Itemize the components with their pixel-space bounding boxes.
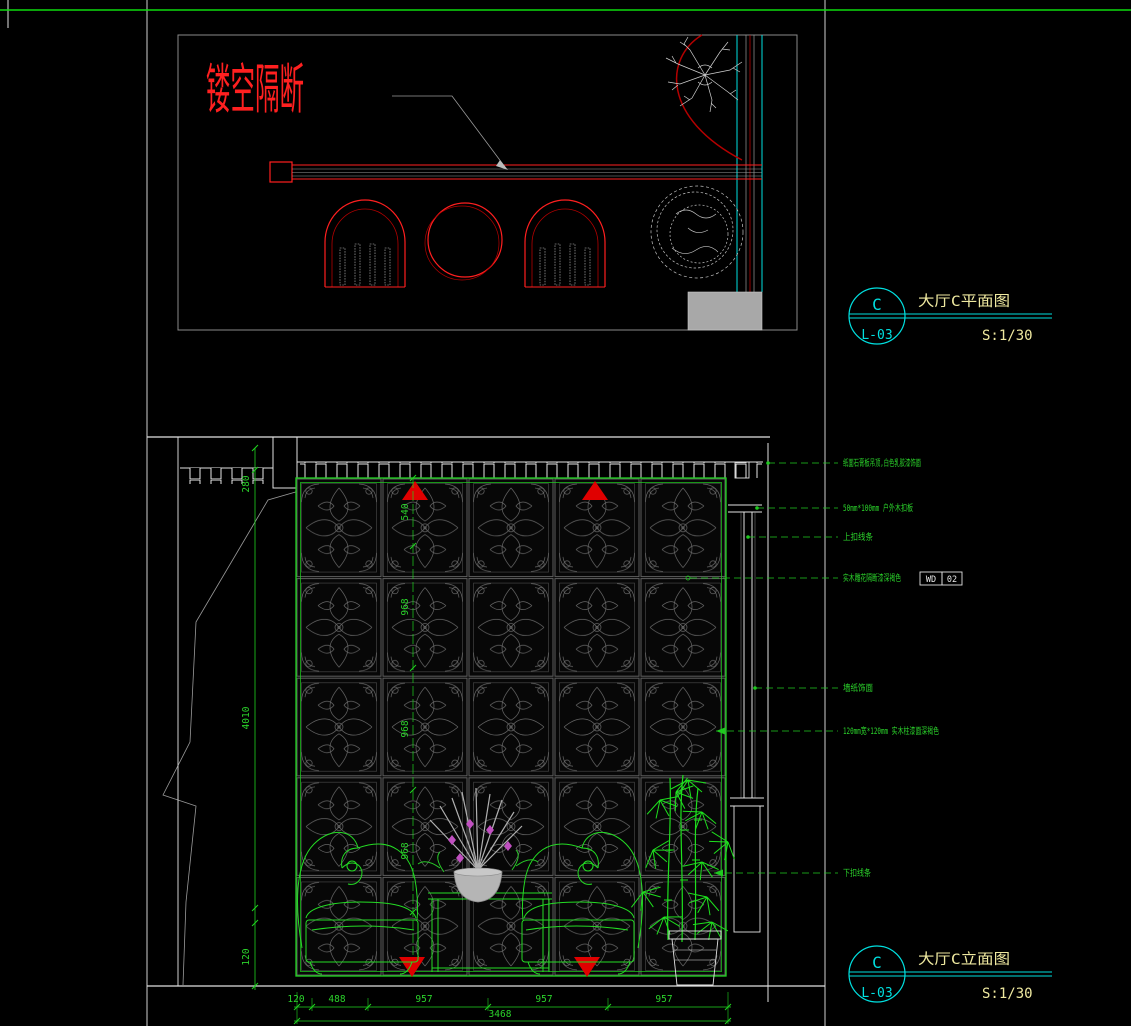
dim-968-c: 968 [400, 842, 411, 859]
left-dimension-chain: 280 4010 120 [241, 445, 258, 990]
material-code: WD [926, 575, 936, 585]
dim-957-a: 957 [415, 994, 432, 1005]
lattice-screen [296, 478, 726, 976]
plan-column-block [688, 292, 762, 330]
dim-968-b: 968 [400, 720, 411, 737]
material-number: 02 [947, 575, 957, 585]
annotation-ceiling: 纸面石膏板吊顶,白色乳胶漆饰面 [843, 457, 921, 469]
annotation-carved-screen: 实木雕花隔断漆深褐色 [843, 572, 901, 584]
plan-view: 镂空隔断 [178, 35, 797, 330]
callout-sheet-number: L-03 [861, 328, 892, 343]
annotation-wood-post: 120mm宽*120mm 实木柱漆面深褐色 [843, 725, 939, 737]
dim-968-a: 968 [400, 598, 411, 615]
dim-957-c: 957 [655, 994, 672, 1005]
plan-wall [688, 35, 762, 330]
plan-leader [392, 96, 508, 170]
plan-round-table [425, 203, 502, 280]
callout-letter: C [872, 953, 882, 972]
plan-shrub-icon [651, 186, 743, 278]
bottom-dimension-chain: 120 488 957 957 957 3468 [287, 992, 731, 1024]
annotation-top-trim: 上扣线条 [843, 531, 873, 543]
dim-280: 280 [241, 475, 252, 492]
dim-3468-total: 3468 [489, 1009, 512, 1020]
drawing-title-plan: 大厅C平面图 [918, 293, 1010, 310]
elevation-view: 280 4010 120 540 968 968 968 [147, 437, 962, 1024]
plan-callout: C L-03 大厅C平面图 S:1/30 [849, 288, 1052, 344]
drawing-scale-plan: S:1/30 [982, 328, 1033, 344]
cad-drawing-sheet: 镂空隔断 [0, 0, 1131, 1026]
callout-sheet-number: L-03 [861, 986, 892, 1001]
drawing-title-elevation: 大厅C立面图 [918, 951, 1010, 968]
dim-540: 540 [400, 503, 411, 520]
callout-letter: C [872, 295, 882, 314]
dim-957-b: 957 [535, 994, 552, 1005]
column-section [728, 443, 768, 1002]
material-tag: WD 02 [920, 572, 962, 585]
dim-488: 488 [328, 994, 345, 1005]
annotation-wood-batten: 50mm*100mm 户外木扣板 [843, 502, 913, 514]
dim-120-left: 120 [241, 948, 252, 965]
drawing-scale-elevation: S:1/30 [982, 986, 1033, 1002]
elevation-callout: C L-03 大厅C立面图 S:1/30 [849, 946, 1052, 1002]
wall-break-line [163, 489, 306, 985]
annotation-wallpaper: 墙纸饰面 [843, 682, 873, 694]
dim-120-bottom: 120 [287, 994, 304, 1005]
plan-chair-left [325, 200, 405, 287]
dim-4010: 4010 [241, 706, 252, 729]
plan-chair-right [525, 200, 605, 287]
annotations: 纸面石膏板吊顶,白色乳胶漆饰面 50mm*100mm 户外木扣板 上扣线条 实木… [686, 457, 962, 879]
partition-label: 镂空隔断 [206, 58, 304, 121]
annotation-bottom-trim: 下扣线条 [843, 867, 871, 879]
plan-partition [270, 162, 762, 182]
